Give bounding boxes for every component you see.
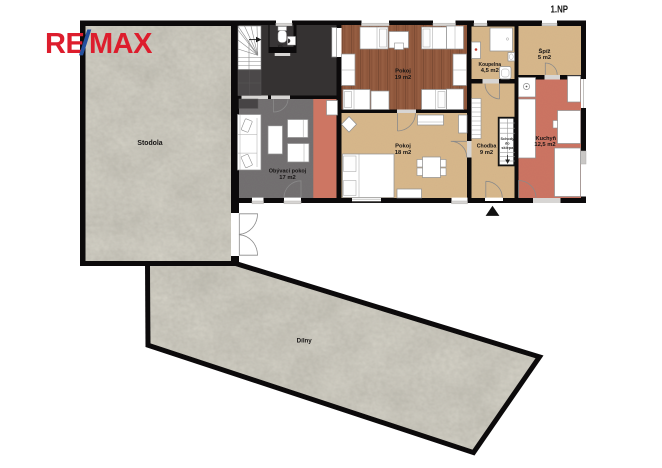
svg-text:9 m2: 9 m2 (480, 150, 493, 156)
svg-text:Pokoj: Pokoj (395, 144, 411, 150)
svg-text:Pokoj: Pokoj (395, 69, 411, 75)
svg-text:Kuchyň: Kuchyň (536, 136, 557, 142)
svg-text:4,5 m2: 4,5 m2 (481, 68, 499, 74)
svg-text:RE: RE (45, 28, 84, 60)
svg-text:19 m2: 19 m2 (395, 75, 411, 81)
svg-text:sklepa: sklepa (501, 146, 514, 150)
svg-text:12,5 m2: 12,5 m2 (534, 142, 555, 148)
svg-text:WC: WC (278, 44, 284, 48)
svg-text:Stodola: Stodola (137, 140, 162, 147)
svg-text:Chodba: Chodba (477, 144, 497, 150)
svg-text:Obývací pokoj: Obývací pokoj (269, 169, 307, 175)
svg-text:Koupelna: Koupelna (479, 62, 502, 68)
svg-text:Špíž: Špíž (539, 47, 551, 55)
svg-text:do: do (505, 141, 510, 145)
svg-text:MAX: MAX (89, 28, 153, 60)
svg-text:Dílny: Dílny (297, 337, 313, 344)
svg-text:1.NP: 1.NP (551, 4, 569, 15)
svg-text:Schody: Schody (500, 137, 515, 141)
svg-text:18 m2: 18 m2 (395, 150, 411, 156)
svg-text:17 m2: 17 m2 (279, 175, 295, 181)
svg-text:5 m2: 5 m2 (538, 55, 551, 61)
